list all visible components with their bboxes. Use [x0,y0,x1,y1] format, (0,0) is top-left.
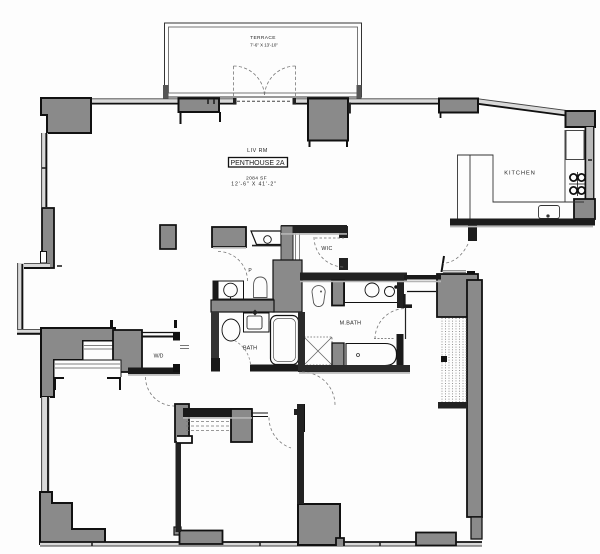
svg-text:LIV RM: LIV RM [247,148,268,154]
svg-text:M.BATH: M.BATH [340,321,362,327]
svg-text:WIC: WIC [321,246,332,252]
svg-text:TERRACE: TERRACE [250,35,276,41]
svg-text:BATH: BATH [243,346,257,352]
svg-text:PENTHOUSE 2A: PENTHOUSE 2A [230,160,284,167]
svg-text:12'-6" X 41'-2": 12'-6" X 41'-2" [231,182,277,188]
svg-text:KITCHEN: KITCHEN [504,171,536,177]
svg-text:W/D: W/D [154,354,164,360]
svg-text:7'-6" X 13'-10": 7'-6" X 13'-10" [250,43,278,48]
